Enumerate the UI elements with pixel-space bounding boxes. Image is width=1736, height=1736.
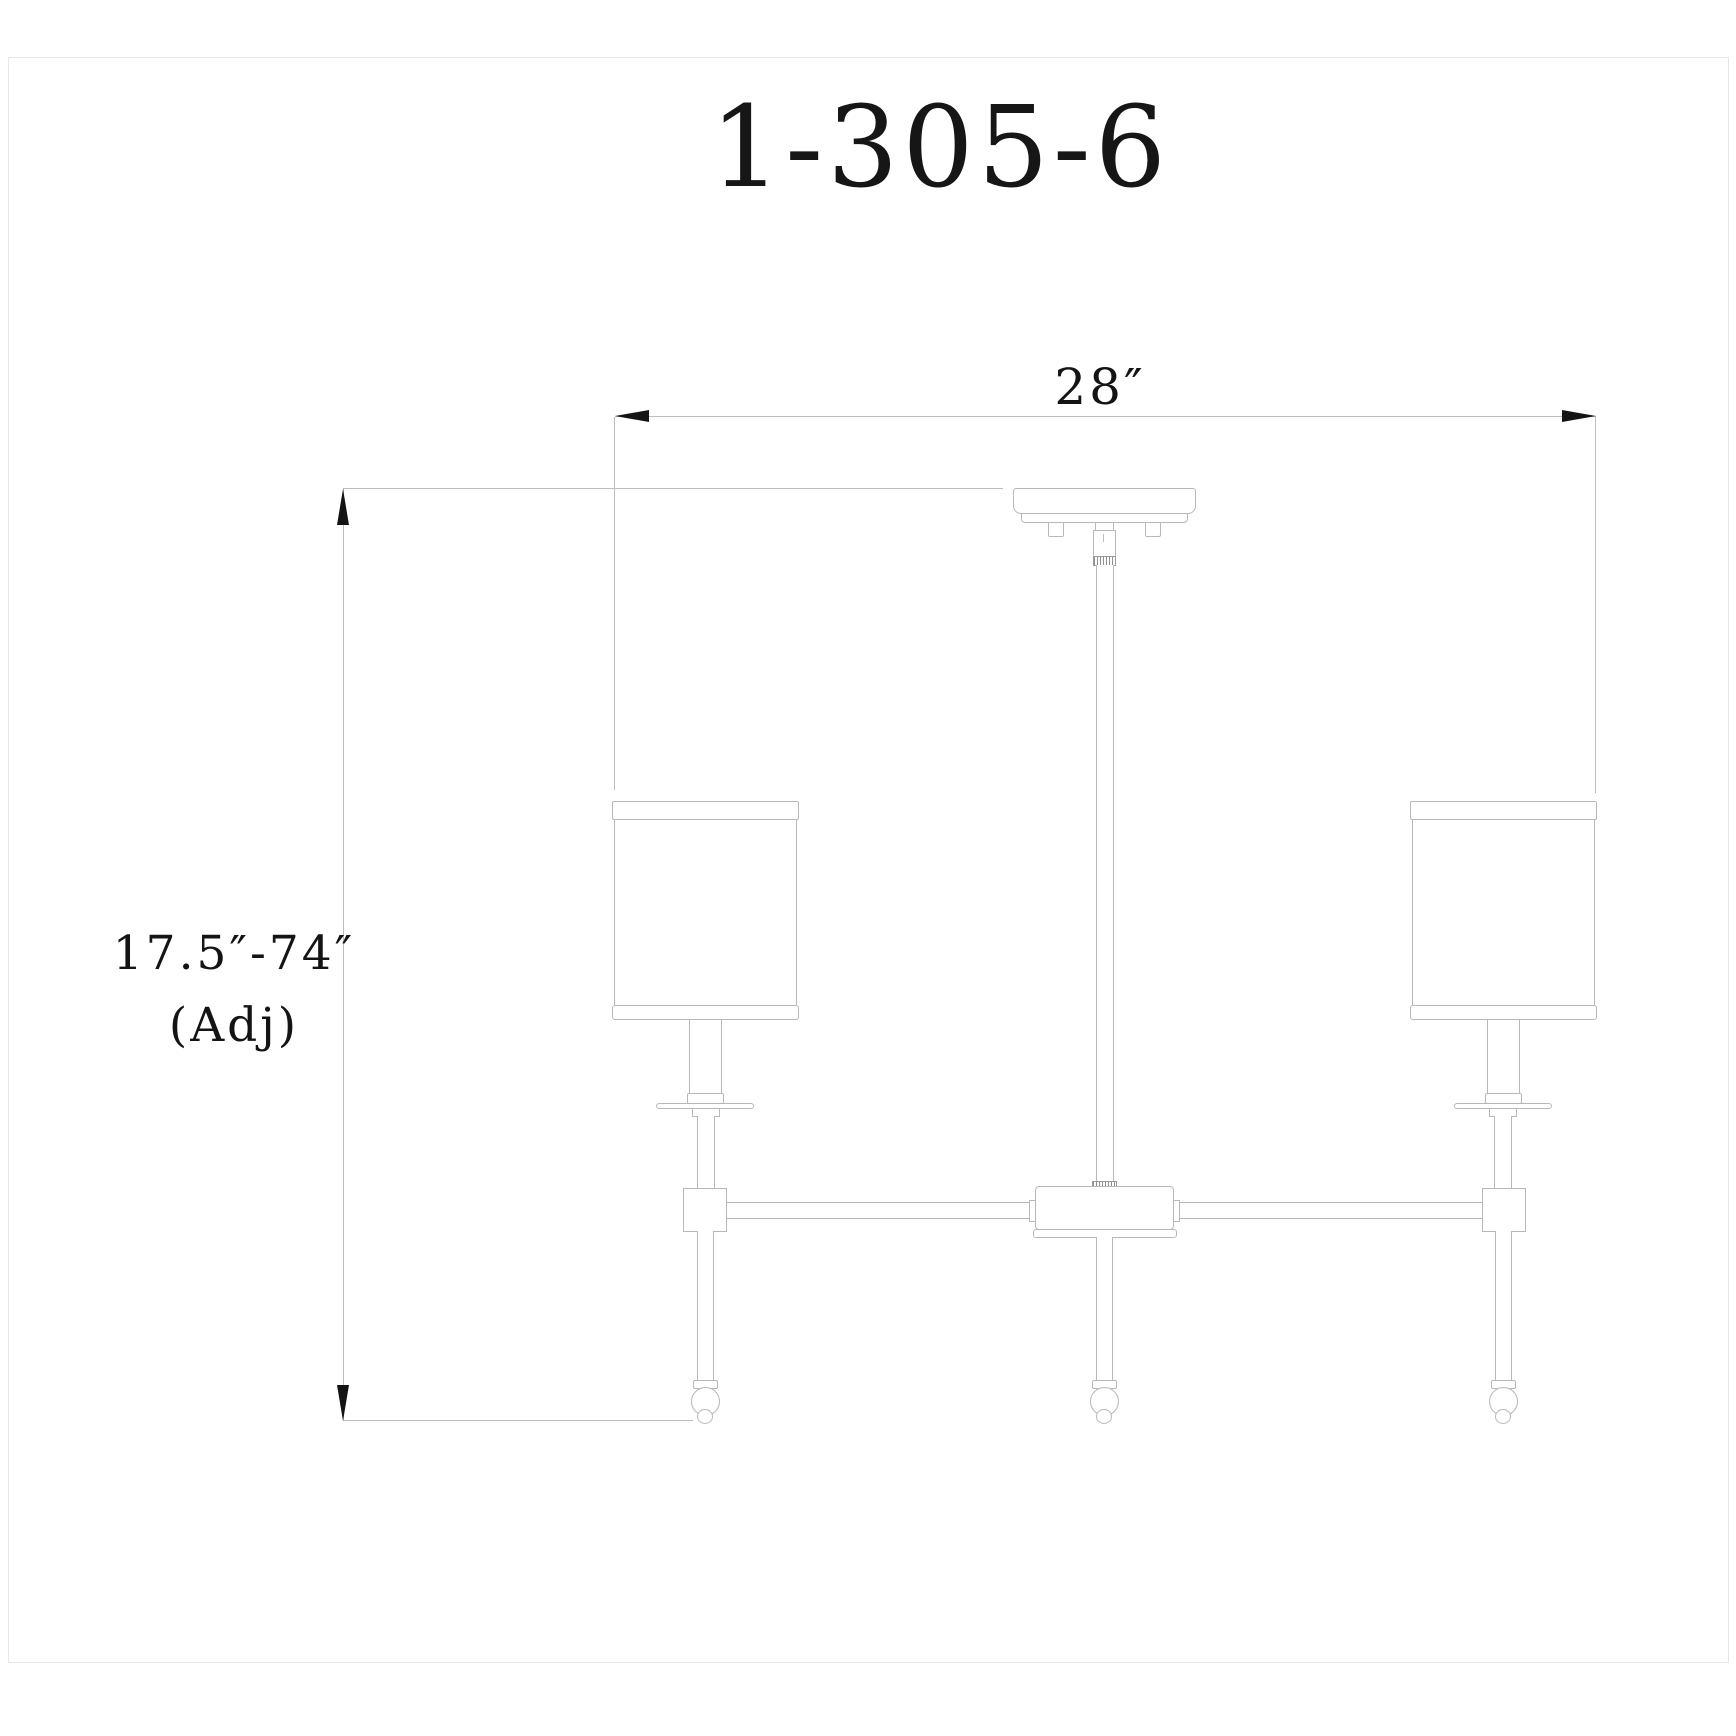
arrow-down-icon	[337, 1385, 349, 1421]
extension-line-right	[1595, 417, 1596, 793]
hang-straight-slot	[1103, 534, 1104, 542]
downrod	[1096, 565, 1114, 1183]
upper-stem-left	[697, 1116, 715, 1189]
shade-body-left	[614, 819, 797, 1006]
arrow-left-icon	[615, 410, 649, 422]
finial-tip-left	[697, 1409, 713, 1424]
center-stem	[1096, 1237, 1113, 1382]
center-hub-body	[1035, 1186, 1174, 1230]
arm-block-right	[1482, 1188, 1526, 1232]
shade-bottom-band-left	[612, 1005, 799, 1020]
shade-top-band-left	[612, 801, 799, 820]
extension-line-bottom	[343, 1420, 693, 1421]
arm-right	[1179, 1202, 1482, 1219]
canopy-screw-left	[1048, 522, 1064, 537]
shade-bottom-band-right	[1410, 1005, 1597, 1020]
drawing-title: 1-305-6	[620, 78, 1260, 218]
width-dimension-label: 28″	[985, 358, 1215, 416]
extension-line-left	[614, 417, 615, 790]
arm-left	[726, 1202, 1029, 1219]
upper-stem-right	[1494, 1116, 1512, 1189]
lower-stem-right	[1495, 1231, 1512, 1382]
height-dimension-label: 17.5″-74″ (Adj)	[108, 918, 360, 1062]
candle-sleeve-left	[689, 1019, 722, 1094]
extension-line-top	[343, 488, 1003, 489]
width-dimension-line	[615, 416, 1596, 417]
ceiling-canopy	[1013, 488, 1196, 514]
lower-stem-left	[697, 1231, 714, 1382]
canopy-screw-right	[1145, 522, 1161, 537]
shade-top-band-right	[1410, 801, 1597, 820]
drawing-canvas: 1-305-6 28″ 17.5″-74″ (Adj)	[0, 0, 1736, 1736]
finial-tip-right	[1495, 1409, 1511, 1424]
arrow-right-icon	[1562, 410, 1596, 422]
finial-tip-center	[1096, 1409, 1112, 1424]
candle-sleeve-right	[1487, 1019, 1520, 1094]
arrow-up-icon	[337, 489, 349, 525]
arm-block-left	[683, 1188, 727, 1232]
hang-straight-cylinder	[1093, 530, 1116, 557]
height-range-text: 17.5″-74″	[108, 918, 360, 990]
shade-body-right	[1412, 819, 1595, 1006]
height-adjustable-note: (Adj)	[108, 990, 360, 1062]
